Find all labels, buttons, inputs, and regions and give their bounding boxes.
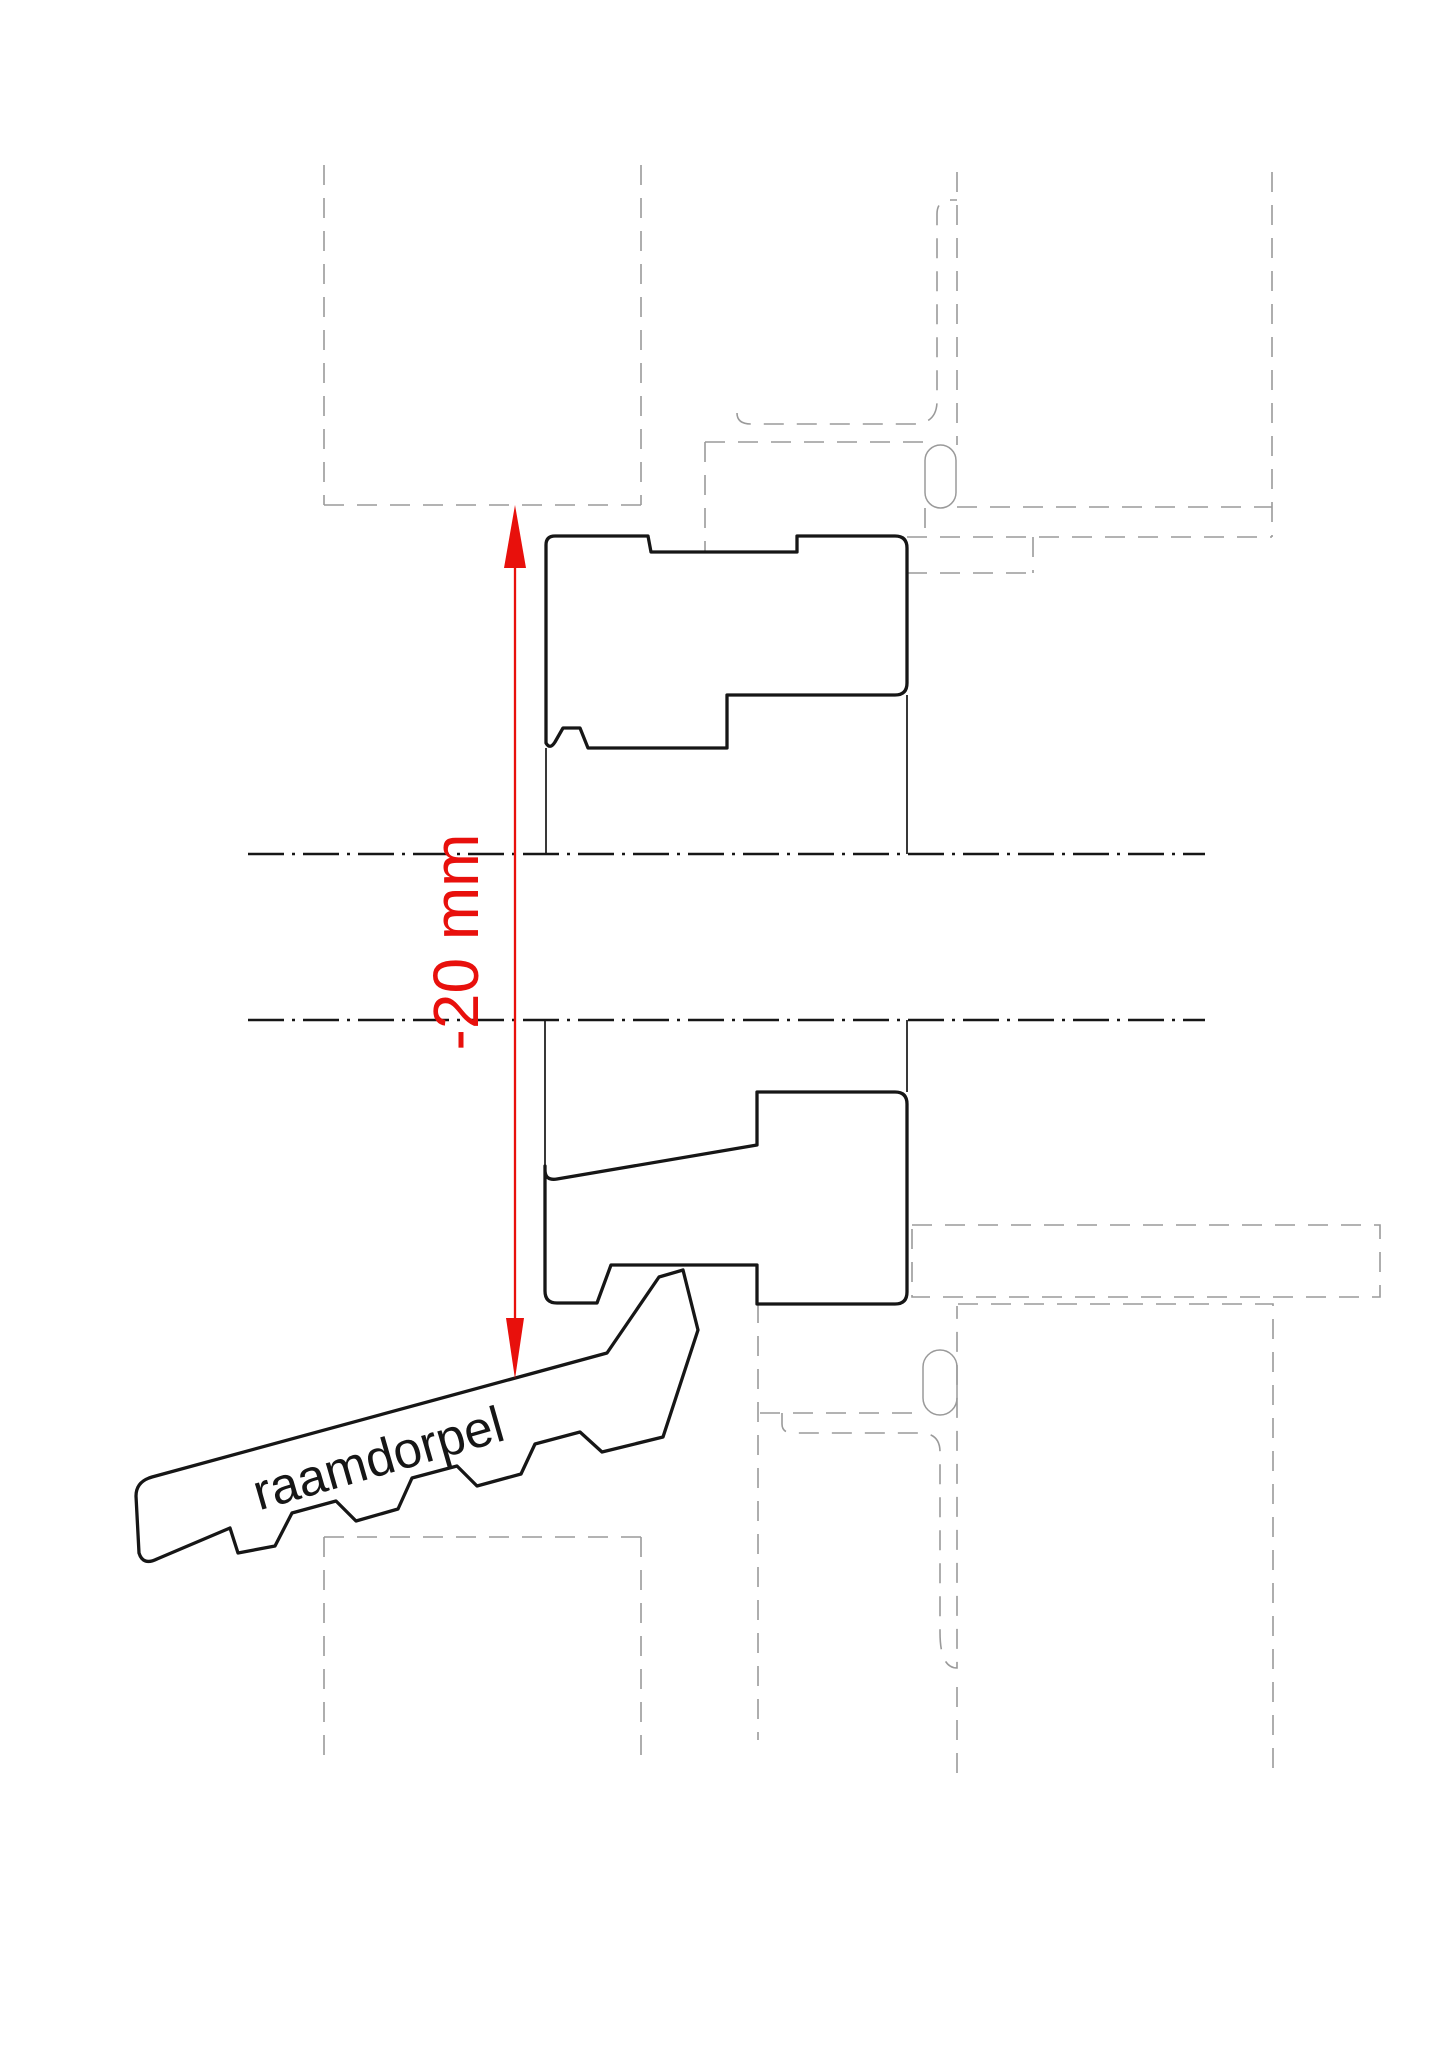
lower-frame-profile bbox=[545, 1092, 907, 1304]
technical-drawing-page: -20 mm raamdorpel bbox=[0, 0, 1444, 2048]
anchor-dowel-upper bbox=[925, 445, 956, 508]
lower-flashing-hook-line bbox=[782, 1306, 957, 1668]
section-profiles bbox=[136, 536, 907, 1561]
dimension-arrowhead-top bbox=[504, 505, 526, 568]
dimension-arrowhead-bottom bbox=[506, 1318, 524, 1379]
dimension-label: -20 mm bbox=[420, 834, 492, 1051]
anchor-dowel-lower bbox=[923, 1350, 957, 1415]
lower-outer-leaf-outline bbox=[958, 1304, 1273, 1770]
window-sill-detail-drawing: -20 mm raamdorpel bbox=[0, 0, 1444, 2048]
raamdorpel-sill-profile bbox=[136, 1270, 698, 1561]
flashing-hook-line bbox=[737, 200, 957, 424]
lower-lintel-outline bbox=[912, 1225, 1380, 1297]
dimension-annotation: -20 mm bbox=[420, 505, 526, 1379]
upper-frame-profile bbox=[546, 536, 907, 748]
anchor-dowels bbox=[923, 445, 957, 1415]
break-lines bbox=[248, 854, 1205, 1020]
